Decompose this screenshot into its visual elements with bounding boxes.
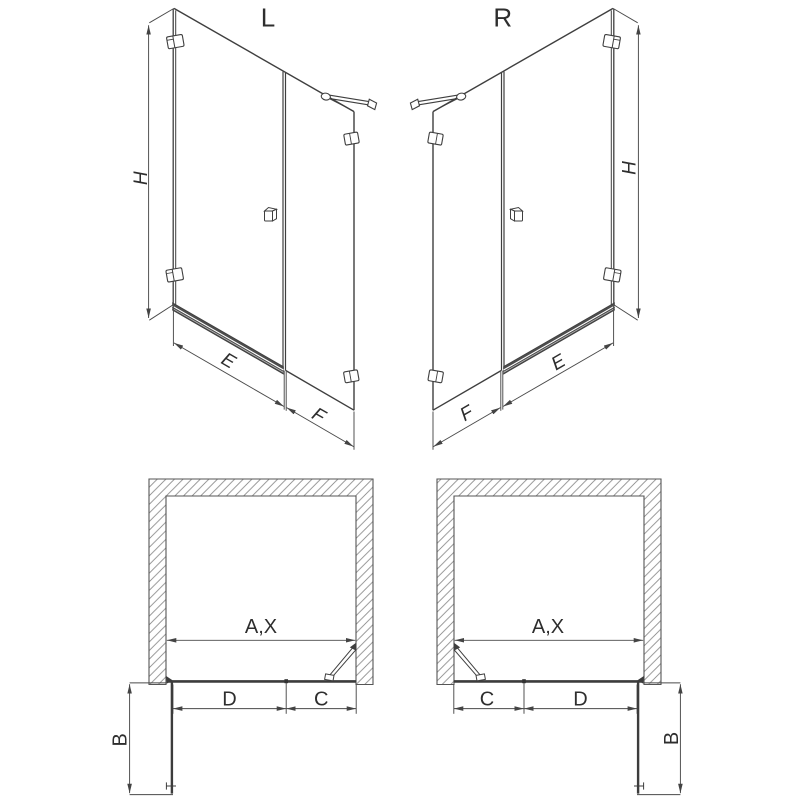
plan-left-opening-dim-label: A,X bbox=[245, 616, 277, 638]
plan-right-clearance-dim-label: B bbox=[661, 732, 683, 745]
plan-left-panel-dim-label: C bbox=[314, 689, 328, 711]
plan-right-door-dim-label: D bbox=[573, 689, 587, 711]
elevation-right-geometry bbox=[410, 8, 638, 449]
plan-left-clearance-dim-label: B bbox=[110, 733, 132, 746]
plan-right-opening-dim-label: A,X bbox=[532, 616, 564, 638]
panel-junction bbox=[284, 679, 288, 683]
elevation-left-geometry bbox=[149, 8, 377, 449]
drawing-canvas: L H E F R H E F bbox=[0, 0, 800, 800]
elevation-left-height-dim-label: H bbox=[131, 171, 152, 185]
plan-left-view: A,X D C B bbox=[110, 479, 374, 795]
elevation-left-variant-label: L bbox=[261, 3, 275, 33]
support-bar-plan bbox=[325, 643, 357, 681]
elevation-right-height-dim-label: H bbox=[620, 161, 641, 175]
elevation-left-view: L H E F bbox=[131, 3, 376, 450]
niche-walls bbox=[437, 479, 661, 685]
elevation-right-view: R H E F bbox=[410, 3, 640, 450]
elevation-left-panel-dim-label: F bbox=[308, 404, 330, 429]
plan-right-panel-dim-label: C bbox=[480, 689, 494, 711]
plan-right-view: A,X C D B bbox=[437, 479, 683, 795]
plan-left-door-dim-label: D bbox=[222, 689, 236, 711]
technical-drawing: L H E F R H E F bbox=[0, 0, 800, 800]
elevation-right-variant-label: R bbox=[493, 3, 512, 33]
panel-junction bbox=[522, 679, 526, 683]
support-bar-plan bbox=[454, 643, 486, 681]
elevation-right-door-dim-label: E bbox=[548, 350, 570, 375]
niche-walls bbox=[149, 479, 373, 685]
